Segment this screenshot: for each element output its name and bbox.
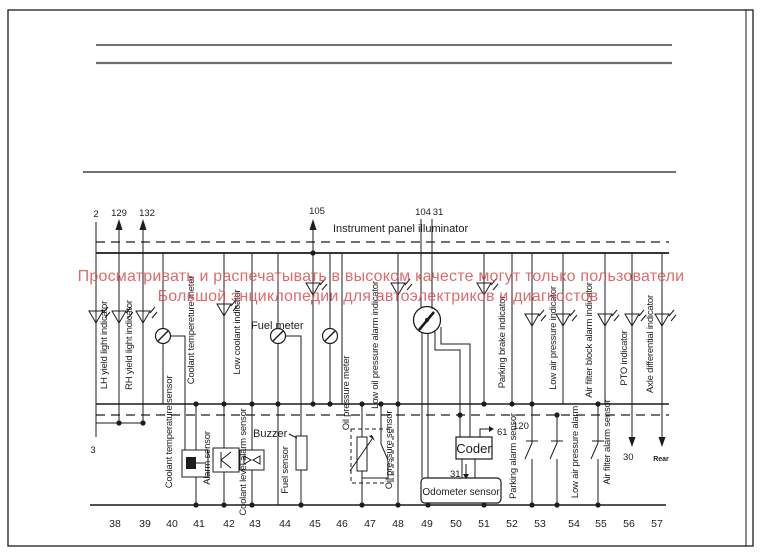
wiring-diagram-page: 2 129 132 105 104 31 Instrument panel il… <box>0 0 763 552</box>
speedometer-icon <box>414 307 441 334</box>
terminal-38: 38 <box>109 518 121 530</box>
label-buzzer: Buzzer <box>253 428 288 440</box>
instrument-panel-illuminator-label: Instrument panel illuminator <box>333 223 468 235</box>
terminal-53: 53 <box>534 518 546 530</box>
watermark-line-1: Просматривать и распечатывать в высоком … <box>78 268 685 285</box>
terminal-55: 55 <box>595 518 607 530</box>
top-bus <box>96 242 669 253</box>
label-alarm-sensor: Alarm sensor <box>202 431 213 485</box>
turn-lamp-icon <box>136 307 157 323</box>
top-ruled-lines <box>83 45 676 172</box>
terminal-42: 42 <box>223 518 235 530</box>
label-coolant-level-sensor: Coolant level alarm sensor <box>238 408 249 515</box>
label-odometer-sensor: Odometer sensor <box>422 487 500 498</box>
terminal-44: 44 <box>279 518 291 530</box>
pressure-switch-icon-parking <box>525 441 538 459</box>
axle-lamp-icon-a <box>625 310 646 326</box>
terminal-3: 3 <box>90 445 95 456</box>
terminal-50: 50 <box>450 518 462 530</box>
terminal-57: 57 <box>651 518 663 530</box>
oil-meter-icon <box>323 329 338 344</box>
terminal-129: 129 <box>111 208 127 219</box>
label-low-air-alarm: Low air pressure alarm <box>570 406 581 499</box>
label-oil-sensor: Oil pressure sensor <box>384 411 395 490</box>
terminal-120: 120 <box>513 421 529 432</box>
terminal-46: 46 <box>336 518 348 530</box>
wiring-diagram-canvas: 2 129 132 105 104 31 Instrument panel il… <box>0 0 763 552</box>
terminal-43: 43 <box>249 518 261 530</box>
label-air-filter-alarm: Air filter alarm sensor <box>602 399 613 484</box>
terminal-54: 54 <box>568 518 580 530</box>
terminal-30: 30 <box>623 452 634 463</box>
misc-terminal-numbers: 3 61 120 31 30 Rear <box>90 421 669 480</box>
terminal-47: 47 <box>364 518 376 530</box>
label-oil-meter: Oil pressure meter <box>341 356 352 431</box>
terminal-31: 31 <box>433 207 444 218</box>
terminal-39: 39 <box>139 518 151 530</box>
terminal-132: 132 <box>139 208 155 219</box>
terminal-105: 105 <box>309 206 325 217</box>
terminal-56: 56 <box>623 518 635 530</box>
terminal-41: 41 <box>193 518 205 530</box>
pressure-switch-icon-low-air <box>550 441 563 459</box>
terminal-31-coder: 31 <box>450 469 461 480</box>
terminal-48: 48 <box>392 518 404 530</box>
coolant-meter-icon <box>156 329 171 344</box>
terminal-49: 49 <box>421 518 433 530</box>
label-pto: PTO indicator <box>619 330 630 385</box>
alarm-sensor-box <box>213 448 239 472</box>
bottom-terminal-row: 38 39 40 41 42 43 44 45 46 47 48 49 50 5… <box>109 518 663 530</box>
terminal-2: 2 <box>93 209 98 220</box>
label-axle-diff: Axle differential indicator <box>645 295 656 393</box>
buzzer-box <box>289 434 307 470</box>
pto-lamp-icon <box>598 310 619 326</box>
label-rh-yield: RH yield light indicator <box>124 300 135 390</box>
low-air-lamp-icon <box>525 310 546 326</box>
label-coolant-temp-sensor: Coolant temperature sensor <box>164 376 175 489</box>
label-lh-yield: LH yield light indicator <box>99 301 110 389</box>
label-fuel-sensor: Fuel sensor <box>280 446 291 493</box>
top-terminal-numbers: 2 129 132 105 104 31 <box>93 206 443 220</box>
terminal-52: 52 <box>506 518 518 530</box>
label-fuel-meter: Fuel meter <box>251 320 304 332</box>
terminal-104: 104 <box>415 207 431 218</box>
air-filter-lamp-icon <box>556 310 577 326</box>
watermark-line-2: Большой энциклопедии для автоэлектриков … <box>158 288 599 305</box>
sensor-labels: Coolant temperature sensor Alarm sensor … <box>164 376 613 516</box>
terminal-40: 40 <box>166 518 178 530</box>
label-coder: Coder <box>456 441 492 456</box>
label-parking-brake: Parking brake indicator <box>497 296 508 389</box>
terminal-45: 45 <box>309 518 321 530</box>
terminal-61: 61 <box>497 427 508 438</box>
terminal-rear: Rear <box>653 456 669 463</box>
terminal-51: 51 <box>478 518 490 530</box>
axle-lamp-icon-b <box>655 310 676 326</box>
